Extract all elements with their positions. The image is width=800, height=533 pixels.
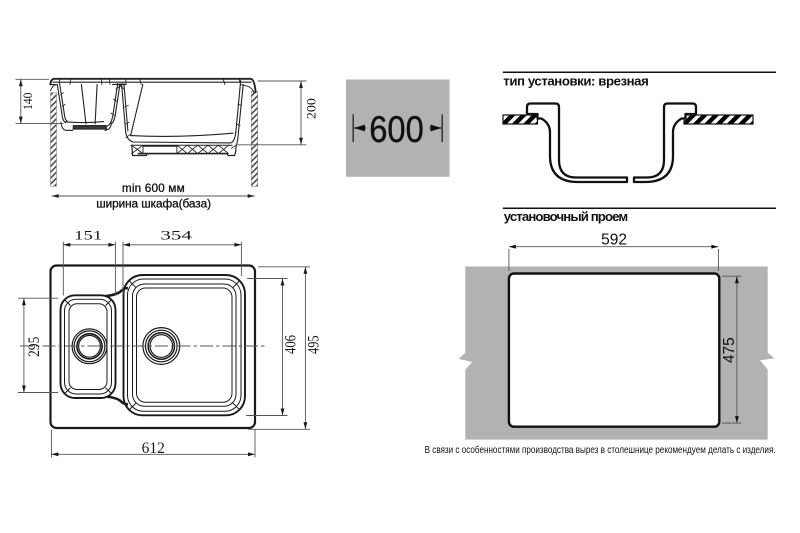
svg-text:406: 406 xyxy=(282,335,299,354)
svg-text:612: 612 xyxy=(142,440,165,457)
svg-text:установочный проем: установочный проем xyxy=(504,209,629,224)
svg-text:295: 295 xyxy=(26,336,43,357)
svg-text:min 600 мм: min 600 мм xyxy=(122,181,185,195)
svg-text:354: 354 xyxy=(160,227,192,242)
svg-text:ширина шкафа(база): ширина шкафа(база) xyxy=(96,196,211,210)
svg-text:600: 600 xyxy=(369,108,424,150)
svg-text:592: 592 xyxy=(601,231,627,248)
svg-text:тип установки: врезная: тип установки: врезная xyxy=(503,74,649,89)
svg-text:140: 140 xyxy=(20,93,35,111)
svg-text:200: 200 xyxy=(303,98,318,119)
svg-text:475: 475 xyxy=(721,337,738,363)
svg-text:151: 151 xyxy=(74,227,102,242)
svg-text:495: 495 xyxy=(305,335,322,354)
svg-text:В связи с особенностями произв: В связи с особенностями производства выр… xyxy=(425,445,776,456)
